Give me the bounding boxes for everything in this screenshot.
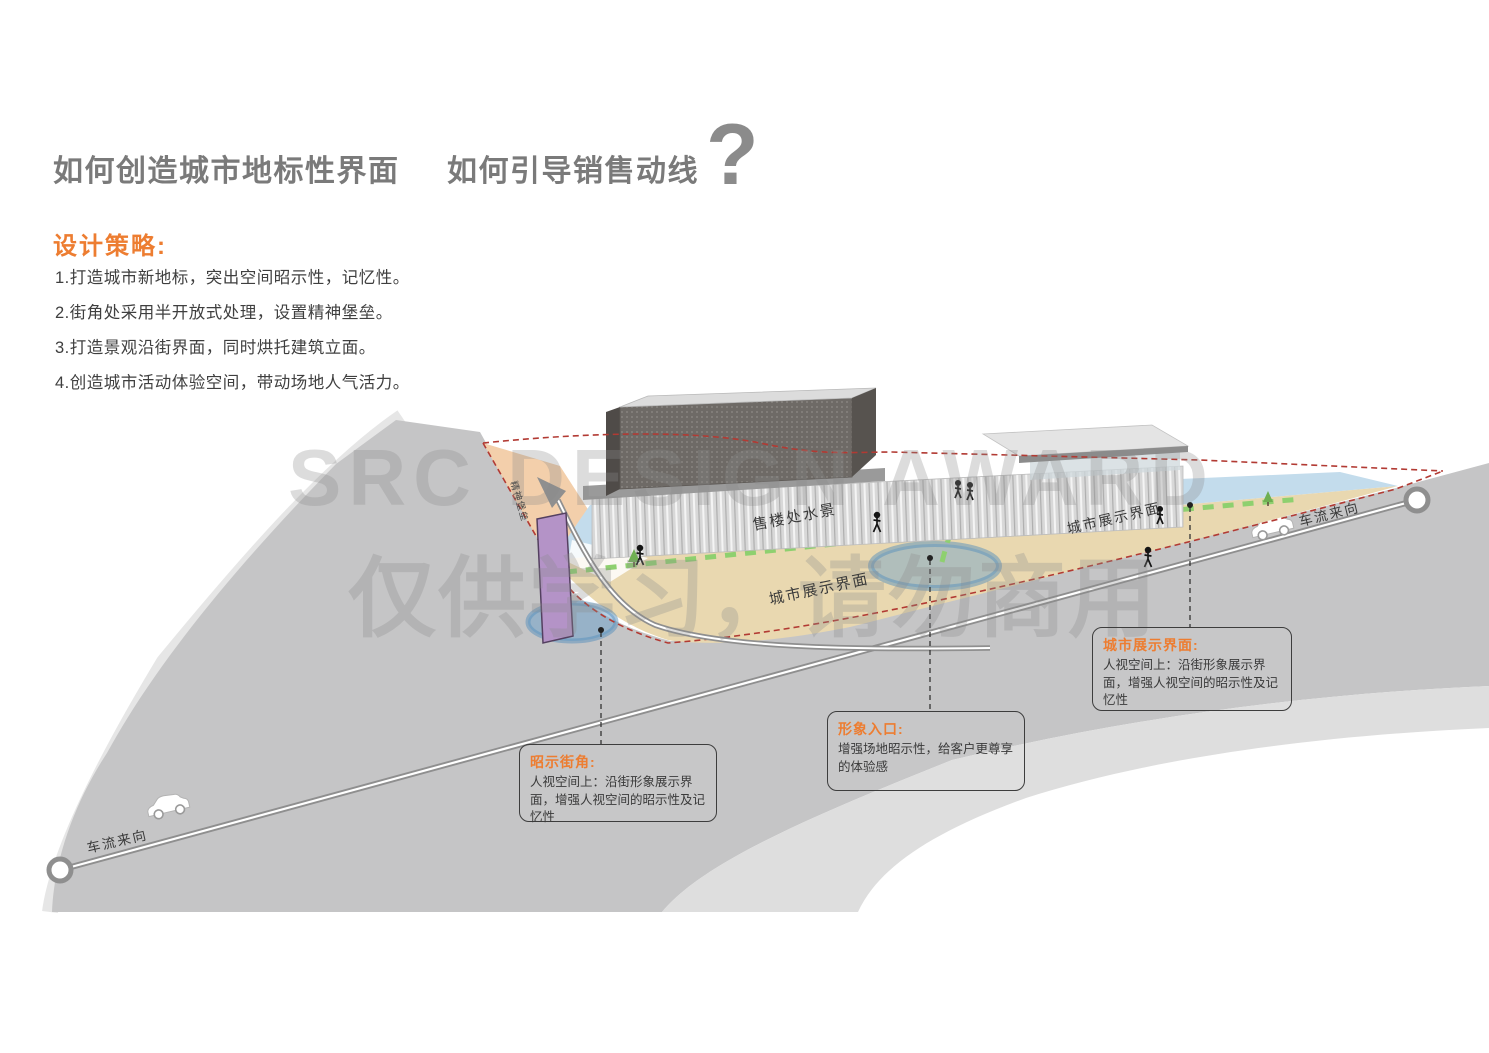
page-title-right: 如何引导销售动线 <box>447 146 699 190</box>
question-mark: ? <box>706 112 759 198</box>
callout-title: 城市展示界面: <box>1103 635 1281 655</box>
strategy-heading: 设计策略: <box>53 226 167 261</box>
strategy-item: 4.创造城市活动体验空间，带动场地人气活力。 <box>55 369 410 393</box>
callout-title: 形象入口: <box>838 719 1014 739</box>
callout-title: 昭示街角: <box>530 752 706 772</box>
strategy-item: 3.打造景观沿街界面，同时烘托建筑立面。 <box>55 334 376 358</box>
callout-body: 增强场地昭示性，给客户更尊享的体验感 <box>838 741 1014 776</box>
spirit-tower-slab <box>537 513 573 643</box>
callout-signage-corner: 昭示街角: 人视空间上：沿街形象展示界面，增强人视空间的昭示性及记忆性 <box>519 744 717 822</box>
callout-body: 人视空间上：沿街形象展示界面，增强人视空间的昭示性及记忆性 <box>530 774 706 827</box>
strategy-item: 1.打造城市新地标，突出空间昭示性，记忆性。 <box>55 264 410 288</box>
strategy-item: 2.街角处采用半开放式处理，设置精神堡垒。 <box>55 299 393 323</box>
page-title-left: 如何创造城市地标性界面 <box>53 146 400 190</box>
callout-image-entrance: 形象入口: 增强场地昭示性，给客户更尊享的体验感 <box>827 711 1025 791</box>
slide: SRC DESIGN AWARD 仅供学习，请勿商用 售楼处水景 城市展示界面 … <box>0 0 1489 1053</box>
callout-display-interface: 城市展示界面: 人视空间上：沿街形象展示界面，增强人视空间的昭示性及记忆性 <box>1092 627 1292 711</box>
callout-body: 人视空间上：沿街形象展示界面，增强人视空间的昭示性及记忆性 <box>1103 657 1281 710</box>
